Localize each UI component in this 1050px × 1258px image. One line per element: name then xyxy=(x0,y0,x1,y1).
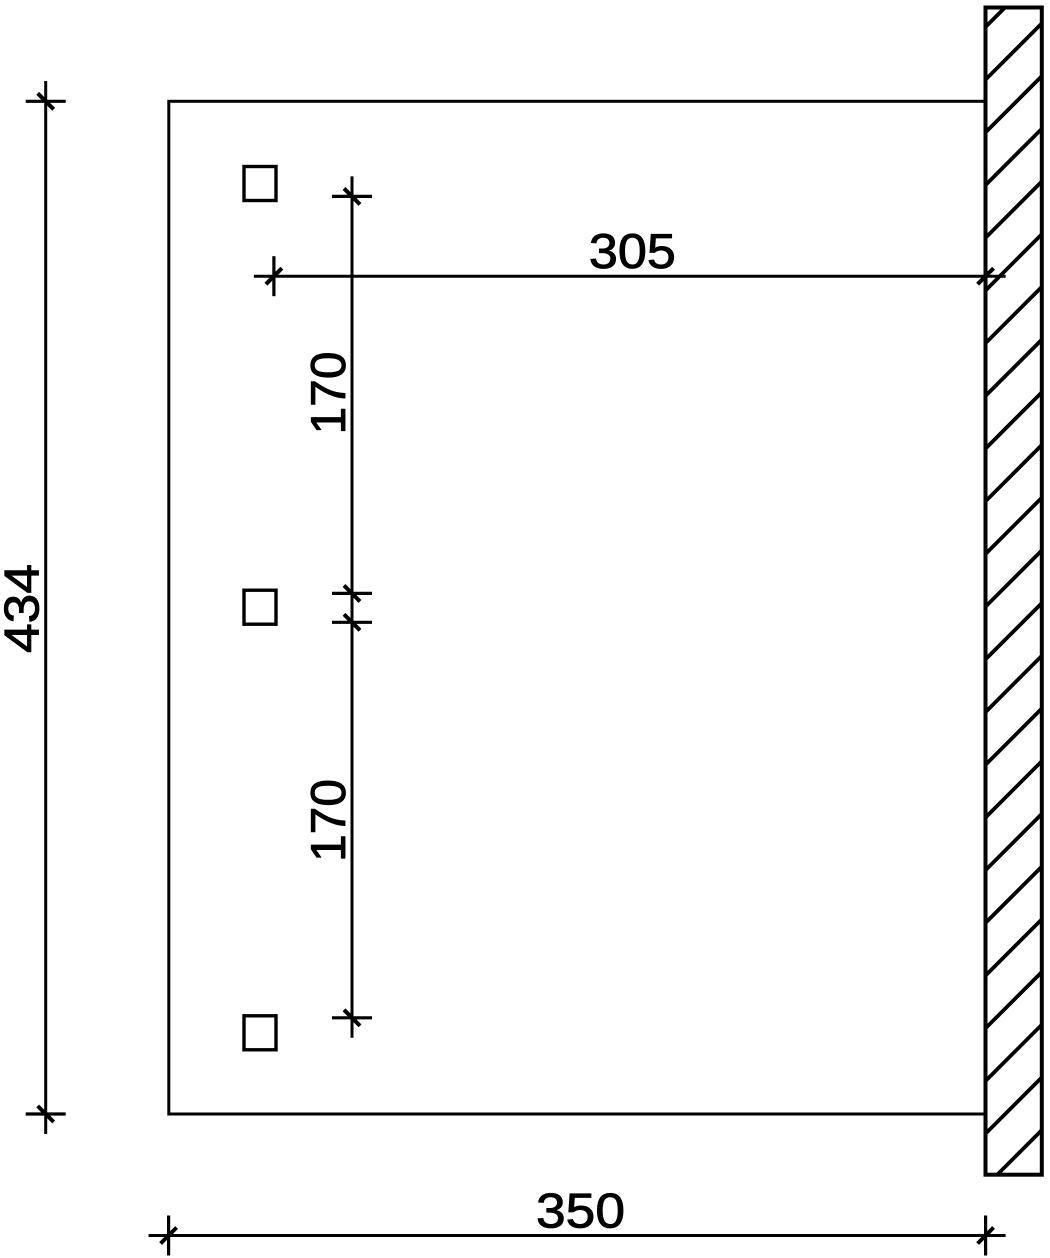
svg-text:434: 434 xyxy=(0,564,50,653)
svg-text:170: 170 xyxy=(302,779,356,862)
svg-text:170: 170 xyxy=(302,352,356,435)
svg-text:305: 305 xyxy=(589,225,676,279)
svg-text:350: 350 xyxy=(536,1184,625,1238)
